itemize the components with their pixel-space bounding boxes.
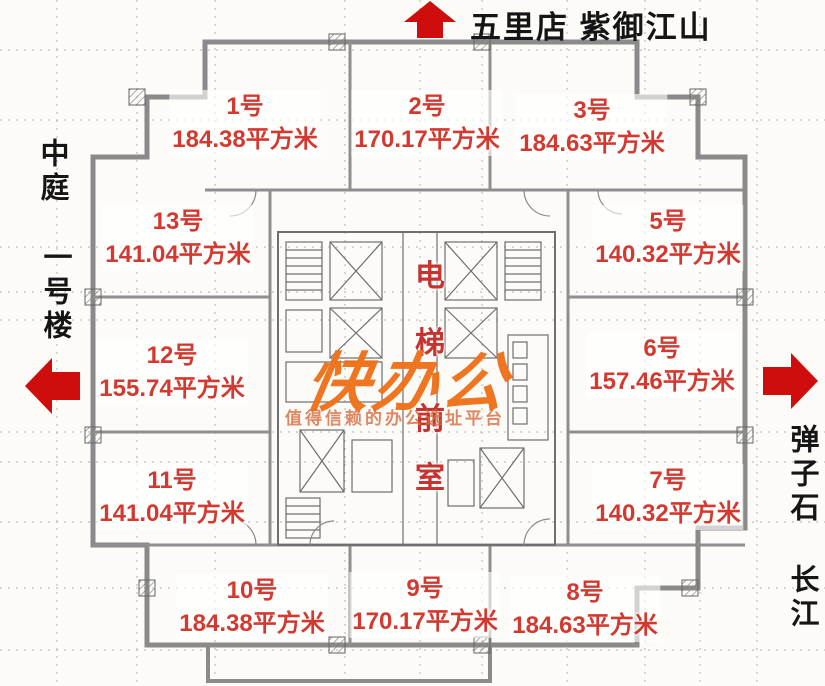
watermark-tagline: 值得信赖的办公选址平台 (285, 404, 505, 429)
unit-label-6: 6号 157.46平方米 (586, 332, 737, 398)
unit-label-12: 12号 155.74平方米 (96, 339, 247, 405)
unit-number: 9号 (349, 572, 500, 605)
unit-number: 11号 (96, 464, 247, 497)
right-arrow-icon (763, 353, 818, 409)
unit-label-7: 7号 140.32平方米 (592, 464, 743, 530)
unit-label-8: 8号 184.63平方米 (509, 576, 660, 642)
landmark-danzishi: 弹子石 (781, 424, 823, 526)
floor-plan-page: 五里店 紫御江山 中庭 一号楼 弹子石 长江 电 梯 前 室 1号 184.38… (0, 0, 825, 686)
unit-number: 5号 (592, 205, 743, 238)
core-label-char: 电 (413, 251, 447, 295)
unit-area: 140.32平方米 (592, 238, 743, 271)
unit-area: 184.63平方米 (516, 127, 667, 160)
unit-area: 170.17平方米 (349, 605, 500, 638)
unit-area: 141.04平方米 (96, 497, 247, 530)
unit-label-2: 2号 170.17平方米 (351, 90, 502, 156)
unit-number: 12号 (96, 339, 247, 372)
unit-label-9: 9号 170.17平方米 (349, 572, 500, 638)
landmark-building-1: 一号楼 (34, 242, 76, 344)
unit-number: 6号 (586, 332, 737, 365)
unit-area: 184.63平方米 (509, 609, 660, 642)
unit-number: 2号 (351, 90, 502, 123)
unit-number: 3号 (516, 94, 667, 127)
unit-area: 141.04平方米 (102, 238, 253, 271)
stair-right (505, 242, 541, 300)
up-arrow-icon (404, 1, 456, 38)
landmark-atrium: 中庭 (31, 138, 73, 206)
landmark-top: 五里店 紫御江山 (470, 2, 712, 47)
left-arrow-icon (25, 358, 80, 414)
unit-area: 184.38平方米 (176, 607, 327, 640)
unit-number: 1号 (169, 90, 320, 123)
landmark-yangtze: 长江 (781, 564, 823, 632)
unit-label-11: 11号 141.04平方米 (96, 464, 247, 530)
unit-label-3: 3号 184.63平方米 (516, 94, 667, 160)
unit-number: 8号 (509, 576, 660, 609)
unit-label-10: 10号 184.38平方米 (176, 574, 327, 640)
unit-number: 13号 (102, 205, 253, 238)
unit-area: 157.46平方米 (586, 365, 737, 398)
unit-area: 140.32平方米 (592, 497, 743, 530)
unit-area: 170.17平方米 (351, 123, 502, 156)
stair-left (286, 242, 322, 300)
unit-area: 155.74平方米 (96, 372, 247, 405)
unit-number: 10号 (176, 574, 327, 607)
unit-label-13: 13号 141.04平方米 (102, 205, 253, 271)
core-label-char: 室 (413, 453, 447, 497)
unit-area: 184.38平方米 (169, 123, 320, 156)
unit-label-1: 1号 184.38平方米 (169, 90, 320, 156)
unit-number: 7号 (592, 464, 743, 497)
unit-label-5: 5号 140.32平方米 (592, 205, 743, 271)
